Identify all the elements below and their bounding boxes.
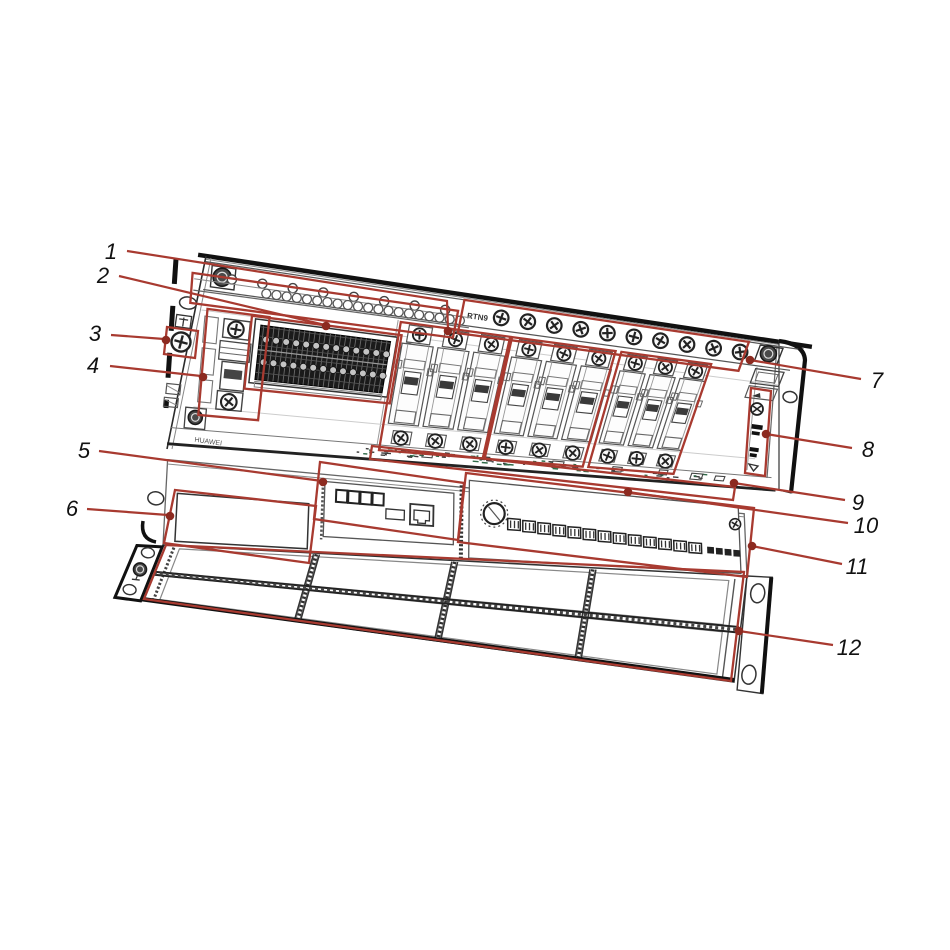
svg-text:11: 11 (846, 554, 869, 579)
svg-text:5: 5 (78, 438, 91, 463)
svg-text:10: 10 (854, 513, 879, 538)
svg-text:3: 3 (89, 321, 102, 346)
svg-text:7: 7 (871, 368, 884, 393)
svg-text:9: 9 (852, 490, 864, 515)
svg-text:4: 4 (87, 353, 99, 378)
svg-text:12: 12 (837, 635, 861, 660)
svg-text:8: 8 (862, 437, 875, 462)
svg-text:2: 2 (96, 263, 109, 288)
svg-text:6: 6 (66, 496, 79, 521)
svg-text:1: 1 (105, 239, 117, 264)
